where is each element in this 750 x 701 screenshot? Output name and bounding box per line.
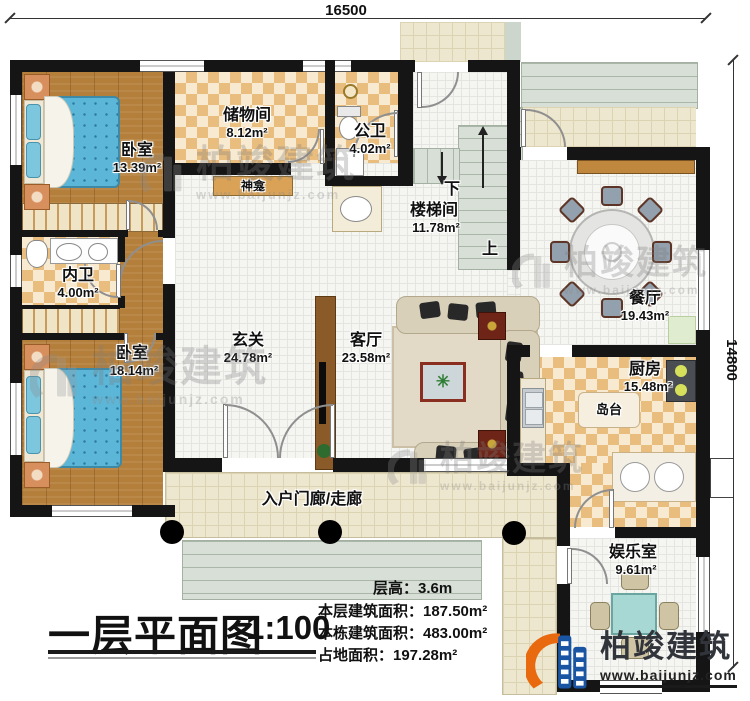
stat-building-area: 本栋建筑面积：483.00m² — [318, 622, 487, 643]
room-area-public-bath: 4.02m² — [349, 142, 390, 155]
brand-website: www.baijunjz.com — [600, 667, 737, 688]
sink-basin — [56, 243, 82, 261]
coffee-table: ✳ — [420, 362, 466, 402]
building-logo-icon — [526, 628, 594, 696]
brand-name: 柏竣建筑 — [600, 628, 737, 665]
topright-steps — [521, 62, 698, 109]
dining-chair — [601, 186, 623, 206]
sofa-top — [396, 296, 540, 334]
wall — [118, 237, 125, 262]
room-label-foyer: 玄关 — [232, 333, 264, 349]
wall — [507, 60, 520, 270]
dining-chair — [652, 241, 672, 263]
sink-basin — [340, 196, 372, 222]
wall — [507, 345, 530, 357]
window — [10, 95, 22, 165]
sink-basin — [88, 243, 108, 261]
room-area-bedroom2: 18.14m² — [110, 364, 158, 377]
stat-land-area: 占地面积：197.28m² — [318, 644, 457, 665]
stat-floor-height: 层高：3.6m — [373, 577, 452, 598]
kitchen-sink-bowl — [525, 392, 543, 408]
room-area-bedroom1: 13.39m² — [113, 161, 161, 174]
room-label-public-bath: 公卫 — [354, 124, 386, 140]
window — [424, 458, 507, 472]
pillow — [26, 376, 41, 414]
wall — [10, 165, 22, 255]
exterior-niche — [710, 458, 734, 498]
dining-table-center — [602, 242, 622, 262]
back-terrace — [400, 22, 508, 62]
room-label-stairwell: 楼梯间 — [410, 203, 458, 219]
room-label-bedroom2: 卧室 — [116, 346, 148, 362]
wall — [572, 345, 696, 357]
room-label-bedroom1: 卧室 — [121, 143, 153, 159]
wall — [696, 147, 710, 250]
wall — [507, 463, 570, 476]
porch-label: 入户门廊/走廊 — [262, 492, 362, 508]
wall — [163, 72, 175, 238]
end-table — [478, 312, 506, 340]
wall — [132, 505, 175, 517]
stair-arrow-up-head — [478, 126, 488, 135]
back-terrace-step — [505, 22, 521, 62]
wall — [557, 538, 570, 546]
end-table — [478, 430, 506, 458]
wall — [567, 147, 696, 160]
pillow — [26, 416, 41, 454]
title-underline-thick — [48, 650, 316, 654]
window — [10, 383, 22, 455]
wall — [10, 60, 140, 72]
pillow — [26, 104, 41, 140]
stair-down-label: 下 — [444, 182, 460, 198]
window — [52, 505, 132, 517]
wall — [175, 163, 291, 175]
room-area-living: 23.58m² — [342, 351, 390, 364]
counter-bowl — [654, 462, 684, 492]
dimension-right-label: 14800 — [724, 325, 740, 395]
mahjong-chair — [659, 602, 679, 630]
wall — [10, 287, 22, 383]
shrine-label: 神龛 — [241, 180, 265, 192]
counter-bowl — [620, 462, 650, 492]
wall — [22, 305, 120, 309]
wall — [696, 497, 710, 557]
wall — [204, 60, 303, 72]
wall — [163, 284, 175, 458]
room-label-kitchen: 厨房 — [629, 362, 661, 378]
kitchen-sink-bowl — [525, 409, 543, 425]
sofa-pillow — [447, 303, 469, 321]
wall — [10, 60, 22, 95]
wall — [156, 333, 163, 340]
room-label-dining: 餐厅 — [629, 291, 661, 307]
room-label-living: 客厅 — [350, 333, 382, 349]
window — [698, 557, 710, 632]
room-area-dining: 19.43m² — [621, 309, 669, 322]
wardrobe-bedroom2 — [22, 308, 120, 335]
bed-blanket — [44, 96, 74, 188]
sideboard — [577, 160, 695, 174]
stair-arrow-down — [441, 152, 443, 176]
dimension-top-label: 16500 — [325, 3, 367, 18]
wall — [333, 458, 424, 472]
nightstand — [24, 462, 50, 488]
wall — [22, 333, 126, 340]
stove-burner — [675, 365, 687, 377]
dining-chair — [601, 298, 623, 318]
pillow — [26, 142, 41, 178]
wall — [696, 330, 710, 497]
window — [698, 250, 710, 330]
door-leaf — [320, 129, 324, 164]
room-area-inner-bath: 4.00m² — [57, 286, 98, 299]
wall — [158, 230, 163, 237]
brand-logo: 柏竣建筑 www.baijunjz.com — [526, 628, 737, 696]
wall — [398, 60, 413, 176]
sofa-pillow — [419, 301, 441, 320]
title-underline-thin — [48, 657, 316, 659]
wall — [325, 176, 413, 186]
wall — [507, 357, 520, 463]
window — [10, 255, 22, 287]
room-label-inner-bath: 内卫 — [62, 268, 94, 284]
dining-chair — [550, 241, 570, 263]
porch-column — [318, 520, 342, 544]
floor-mat — [668, 316, 696, 344]
stove-burner — [675, 384, 687, 396]
wall — [163, 458, 222, 472]
wall — [557, 527, 570, 538]
room-area-storage: 8.12m² — [226, 126, 267, 139]
island-label: 岛台 — [596, 403, 622, 416]
room-area-kitchen: 15.48m² — [624, 380, 672, 393]
wall — [10, 505, 52, 517]
wall — [507, 147, 521, 160]
nightstand — [24, 184, 50, 210]
room-area-entertainment: 9.61m² — [615, 563, 656, 576]
porch-column — [160, 520, 184, 544]
room-label-entertainment: 娱乐室 — [609, 545, 657, 561]
wall — [22, 230, 128, 237]
room-label-storage: 储物间 — [223, 108, 271, 124]
stair-arrow-up — [482, 132, 484, 188]
nightstand — [24, 344, 50, 370]
mahjong-chair — [590, 602, 610, 630]
stat-floor-area: 本层建筑面积：187.50m² — [318, 600, 487, 621]
room-area-foyer: 24.78m² — [224, 351, 272, 364]
shower-drain — [343, 84, 358, 99]
room-area-stairwell: 11.78m² — [412, 221, 460, 234]
window — [140, 60, 204, 72]
toilet — [26, 240, 48, 268]
wall — [615, 527, 696, 538]
bed-blanket — [44, 368, 74, 468]
floor-plan-canvas: ✳ — [0, 0, 750, 701]
porch-column — [502, 521, 526, 545]
stair-up-label: 上 — [482, 242, 498, 258]
wall — [325, 60, 335, 176]
